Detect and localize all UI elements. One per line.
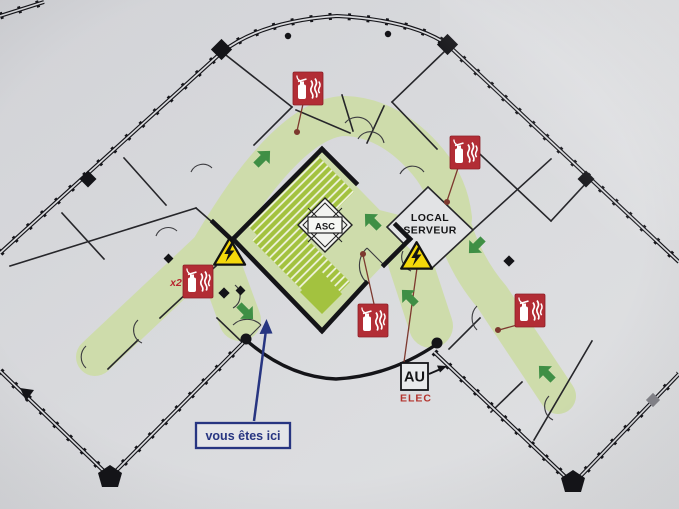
floor-plan-svg: ASC LOCAL SERVEUR: [0, 0, 679, 509]
photo-vignette: [0, 0, 679, 509]
evacuation-plan-photo: ASC LOCAL SERVEUR: [0, 0, 679, 509]
